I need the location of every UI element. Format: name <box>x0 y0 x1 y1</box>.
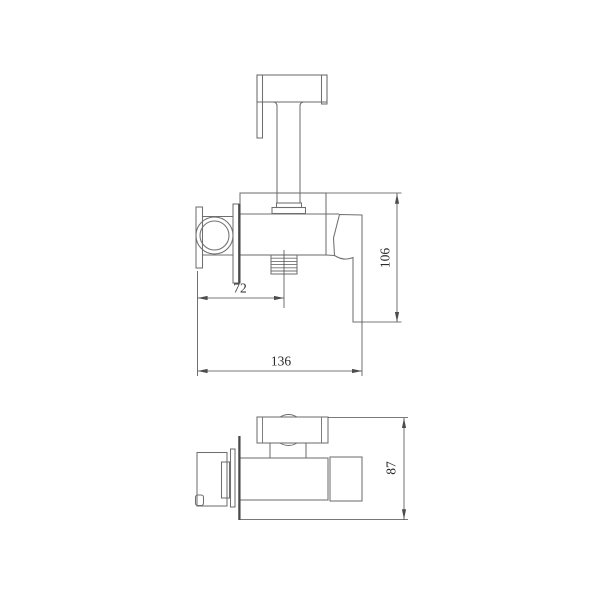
hose-collar-upper <box>277 203 302 208</box>
valve-body-outline <box>240 193 326 255</box>
wall-inlet-fitting <box>196 207 233 268</box>
dimension-label-106: 106 <box>378 248 393 269</box>
arrowhead <box>198 296 208 300</box>
wall-escutcheon-top <box>231 449 236 507</box>
handle-underside-seam <box>326 255 335 256</box>
arrowhead <box>352 369 362 373</box>
valve-body <box>233 193 339 283</box>
inlet-ring-outer <box>196 217 233 254</box>
arrowhead <box>198 369 208 373</box>
sprayer-head-bar <box>257 75 327 102</box>
sprayer-head-left-cap <box>257 75 263 138</box>
sprayer-neck-fillet-right <box>300 102 322 106</box>
inlet-flange-bar <box>196 207 203 268</box>
sprayer-head-right-cap <box>322 75 328 104</box>
arrowhead <box>402 418 406 428</box>
body-top-outline <box>239 458 328 500</box>
dimension-label-136: 136 <box>271 354 292 369</box>
hose-collar-lower <box>272 208 306 214</box>
handle-cap-top <box>330 457 362 501</box>
sprayer-neck-fillet-left <box>263 102 278 106</box>
arrowhead <box>274 296 284 300</box>
dimension-label-72: 72 <box>233 281 247 296</box>
handle-lever <box>326 215 362 323</box>
dimension-depth: 87 <box>239 418 408 520</box>
arrowhead <box>402 509 406 519</box>
arrowhead <box>395 194 399 204</box>
dimension-label-87: 87 <box>384 461 399 475</box>
sprayer-head-top <box>257 415 328 459</box>
wall-inlet-top <box>196 453 230 507</box>
inlet-union-top <box>222 462 230 498</box>
technical-drawing-canvas: 72 136 106 <box>0 0 600 600</box>
side-view: 72 136 106 <box>196 75 402 376</box>
drawing-svg: 72 136 106 <box>0 0 600 600</box>
valve-body-top <box>231 436 363 520</box>
top-view: 87 <box>196 415 409 521</box>
handle-outline <box>334 215 363 323</box>
sprayer-bar-top <box>257 417 328 443</box>
inlet-ring-inner <box>200 221 229 250</box>
arrowhead <box>395 312 399 322</box>
dimension-overall-length: 136 <box>198 322 362 376</box>
